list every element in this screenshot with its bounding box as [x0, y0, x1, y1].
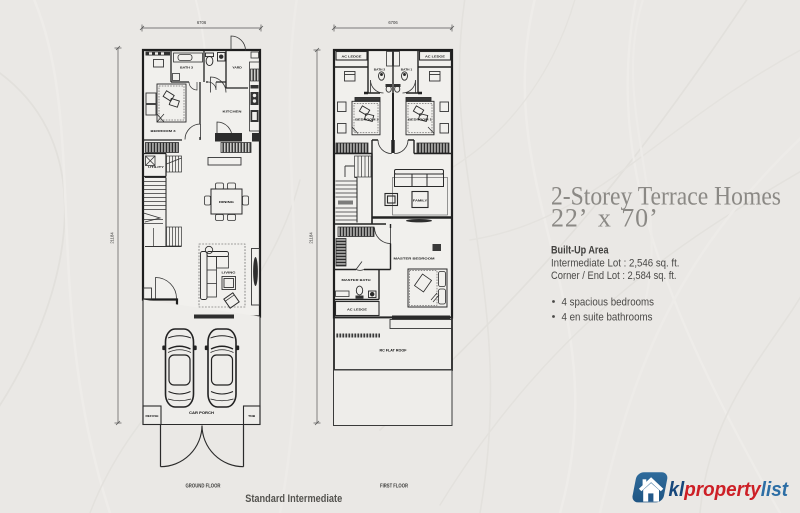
- svg-text:BATH 1: BATH 1: [401, 68, 413, 72]
- svg-text:DINING: DINING: [219, 200, 235, 204]
- svg-text:BEDROOM 3: BEDROOM 3: [151, 129, 176, 133]
- svg-text:klpropertylist: klpropertylist: [669, 478, 790, 501]
- svg-text:CAR PORCH: CAR PORCH: [189, 411, 215, 415]
- svg-text:21184: 21184: [110, 232, 115, 244]
- svg-text:FIRST FLOOR: FIRST FLOOR: [380, 484, 408, 490]
- svg-text:4 en suite bathrooms: 4 en suite bathrooms: [562, 312, 654, 324]
- svg-text:4 spacious bedrooms: 4 spacious bedrooms: [562, 297, 655, 309]
- svg-text:22’x70’: 22’x70’: [551, 204, 659, 233]
- svg-text:Built-Up Area: Built-Up Area: [551, 245, 609, 257]
- svg-text:BATH 3: BATH 3: [180, 66, 193, 70]
- svg-text:AC LEDGE: AC LEDGE: [347, 308, 367, 312]
- svg-text:YARD: YARD: [232, 66, 242, 70]
- svg-text:21184: 21184: [309, 232, 314, 244]
- svg-text:6706: 6706: [197, 20, 207, 25]
- svg-text:GROUND FLOOR: GROUND FLOOR: [186, 484, 221, 490]
- svg-text:Intermediate Lot : 2,546 sq. f: Intermediate Lot : 2,546 sq. ft.: [551, 258, 680, 270]
- svg-text:6706: 6706: [388, 20, 398, 25]
- svg-text:Corner / End Lot : 2,584 sq. f: Corner / End Lot : 2,584 sq. ft.: [551, 270, 677, 282]
- svg-text:Standard Intermediate: Standard Intermediate: [245, 493, 342, 505]
- svg-text:UTILITY: UTILITY: [148, 165, 164, 169]
- svg-text:MASTER BATH: MASTER BATH: [342, 278, 371, 282]
- svg-text:LIVING: LIVING: [222, 271, 237, 275]
- svg-text:FAMILY: FAMILY: [413, 199, 429, 203]
- svg-text:RC FLAT ROOF: RC FLAT ROOF: [380, 349, 407, 353]
- svg-text:MASTER BEDROOM: MASTER BEDROOM: [394, 257, 436, 261]
- svg-text:REFUSE: REFUSE: [146, 414, 159, 418]
- svg-text:TNB: TNB: [248, 414, 255, 418]
- svg-text:BEDROOM 1: BEDROOM 1: [408, 118, 432, 122]
- svg-text:AC LEDGE: AC LEDGE: [425, 55, 445, 59]
- svg-text:BATH 2: BATH 2: [374, 68, 386, 72]
- svg-text:KITCHEN: KITCHEN: [223, 110, 242, 114]
- svg-text:AC LEDGE: AC LEDGE: [342, 55, 362, 59]
- svg-text:BEDROOM 2: BEDROOM 2: [355, 118, 379, 122]
